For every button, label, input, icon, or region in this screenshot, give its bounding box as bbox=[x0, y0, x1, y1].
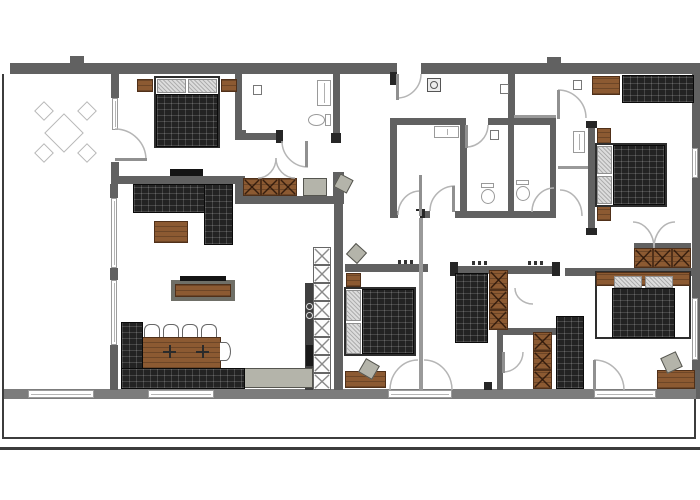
roomC-closet-x1 bbox=[533, 332, 552, 351]
bedroom4-desk bbox=[657, 370, 695, 389]
bedroomA-pillow-2 bbox=[346, 323, 361, 354]
hall-wall-post bbox=[331, 133, 341, 143]
corridor-bedroom4-door-arc bbox=[514, 287, 534, 305]
hall-west-wall bbox=[333, 73, 340, 135]
kitchen-back-counter bbox=[241, 368, 313, 388]
hall-east-door-arc bbox=[557, 89, 587, 119]
south-window-1 bbox=[28, 390, 94, 398]
bedroomB-exterior-door-arc bbox=[423, 359, 453, 391]
sanitary-north-wall-a bbox=[390, 118, 466, 125]
kitchen-tall-unit-3 bbox=[313, 283, 331, 301]
bedroom1-pillow-right bbox=[188, 79, 217, 93]
entry-pendant-lamp bbox=[500, 84, 509, 94]
west-window-1 bbox=[112, 98, 118, 130]
bath1-toilet-bowl bbox=[308, 114, 325, 126]
wall-tv-bar bbox=[170, 169, 203, 176]
bedroom1-nightstand-left bbox=[137, 79, 153, 92]
entry-door-arc bbox=[396, 73, 422, 99]
bedroom2-bench bbox=[592, 76, 620, 95]
shower-room-door-arc bbox=[559, 189, 583, 217]
bedroom1-duvet bbox=[156, 94, 218, 147]
hall-east-door-leaf bbox=[557, 90, 560, 119]
bedroom4-duvet bbox=[612, 288, 675, 338]
bedroomB-closet-x2 bbox=[489, 290, 508, 310]
bedroom1-pillow-left bbox=[157, 79, 186, 93]
bedroom2-closet-x1 bbox=[634, 248, 653, 268]
hall-closet-x1 bbox=[243, 178, 261, 196]
west-wall-seg-3 bbox=[110, 184, 118, 198]
wc1-door-arc bbox=[465, 124, 489, 148]
south-door-threshold-2 bbox=[594, 390, 656, 398]
bar-stool-2 bbox=[346, 243, 367, 264]
roomC-closet-x3 bbox=[533, 370, 552, 389]
corridor-door-arc bbox=[397, 190, 421, 216]
corridor-south-wall-a bbox=[345, 264, 428, 272]
sofa-short-section bbox=[204, 184, 233, 245]
ensuite-door-leaf bbox=[305, 141, 308, 167]
sanitary-west-wall bbox=[390, 125, 397, 218]
bath1-south-wall bbox=[242, 133, 278, 140]
bedroom4-pillow-1 bbox=[614, 276, 642, 288]
south-door-threshold-1 bbox=[388, 390, 452, 398]
south-window-2 bbox=[148, 390, 214, 398]
hall-shelf bbox=[303, 178, 327, 196]
east-window-2 bbox=[692, 298, 698, 360]
kitchen-tall-unit-8 bbox=[313, 373, 331, 390]
wc2-toilet-tank bbox=[516, 180, 529, 185]
tv-bar bbox=[180, 276, 226, 281]
bedroomB-closet-x3 bbox=[489, 310, 508, 330]
coat-hook-8 bbox=[404, 260, 407, 264]
terrace-chair-3 bbox=[34, 143, 54, 163]
coat-hook-3 bbox=[484, 261, 487, 265]
dining-bench-side bbox=[121, 322, 143, 370]
bedroom2-closet-x2 bbox=[653, 248, 672, 268]
bedroom4-headboard bbox=[596, 272, 690, 286]
wc1-toilet-bowl bbox=[481, 189, 495, 204]
dining-chair-1 bbox=[144, 324, 160, 337]
bathA-door-gap bbox=[430, 211, 455, 218]
coat-hook-4 bbox=[528, 261, 531, 265]
coat-hook-6 bbox=[540, 261, 543, 265]
bedroom2-pillow-1 bbox=[597, 146, 612, 174]
coat-hook-7 bbox=[398, 260, 401, 264]
terrace-chair-2 bbox=[77, 101, 97, 121]
roomC-door-arc bbox=[502, 351, 524, 373]
chimney-mark-1 bbox=[70, 56, 84, 64]
kitchen-sink-bowl-1 bbox=[306, 303, 313, 310]
wc2-door-arc bbox=[531, 187, 555, 213]
tv-board-wood-top bbox=[175, 284, 231, 297]
bedroom2-closet-x3 bbox=[672, 248, 691, 268]
coffee-table bbox=[154, 221, 188, 243]
dining-chair-4 bbox=[201, 324, 217, 337]
table-cross-2 bbox=[196, 345, 209, 358]
hall-closet-x2 bbox=[261, 178, 279, 196]
terrace-door-leaf bbox=[115, 158, 147, 161]
bedroom4-exterior-door-leaf bbox=[593, 360, 596, 390]
hall-closet-x3 bbox=[279, 178, 297, 196]
niche-wall bbox=[235, 196, 343, 204]
bedroom2-wardrobe bbox=[622, 75, 694, 103]
deck-edge-bottom bbox=[2, 437, 695, 439]
bathA-pendant-lamp bbox=[490, 130, 499, 140]
bottom-wall-post bbox=[484, 382, 492, 390]
bedroom2-nightstand-2 bbox=[597, 205, 611, 221]
dining-chair-3 bbox=[182, 324, 198, 337]
bedroom2-double-door-left bbox=[632, 221, 655, 249]
shower-room-divider bbox=[558, 166, 588, 169]
dining-chair-2 bbox=[163, 324, 179, 337]
bedroom2-west-wall bbox=[588, 125, 595, 230]
corridor-post-right bbox=[552, 262, 560, 276]
deck-edge-left bbox=[2, 74, 4, 438]
kitchen-sink-bowl-2 bbox=[306, 312, 313, 319]
floor-plan bbox=[0, 0, 700, 500]
bedroomA-duvet bbox=[362, 289, 414, 354]
kitchen-tall-unit-1 bbox=[313, 247, 331, 265]
kitchen-oven bbox=[306, 345, 313, 366]
east-window-1 bbox=[692, 148, 698, 178]
coat-hook-5 bbox=[534, 261, 537, 265]
wc1-toilet-tank bbox=[481, 183, 494, 188]
bedroom4-pillow-2 bbox=[645, 276, 673, 288]
coat-hook-1 bbox=[472, 261, 475, 265]
terrace-table bbox=[44, 113, 84, 153]
bedroomA-exterior-door-arc bbox=[389, 359, 419, 391]
terrace-chair-4 bbox=[77, 143, 97, 163]
west-wall-seg-5 bbox=[110, 345, 118, 390]
bedroom4-wardrobe bbox=[556, 316, 584, 389]
bedroom2-nightstand-1 bbox=[597, 128, 611, 144]
french-door-left-arc bbox=[257, 157, 277, 179]
kitchen-tall-unit-4 bbox=[313, 301, 331, 319]
bedroomB-closet-x1 bbox=[489, 270, 508, 290]
bottom-wall bbox=[2, 389, 696, 399]
kitchen-bedroom-wall bbox=[334, 204, 343, 390]
bedroom1-south-wall bbox=[112, 176, 245, 184]
site-boundary-line bbox=[0, 447, 700, 450]
sanitary-north-wall-b bbox=[488, 118, 556, 125]
bedroom2-wall-post-top bbox=[586, 121, 597, 128]
dining-table bbox=[142, 337, 221, 369]
corridor-door-leaf bbox=[419, 175, 422, 216]
bedroom2-wall-post-bottom bbox=[586, 228, 597, 235]
coat-hook-9 bbox=[410, 260, 413, 264]
bath1-toilet-tank bbox=[325, 114, 331, 126]
kitchen-tall-unit-6 bbox=[313, 337, 331, 355]
entry-east-wall bbox=[508, 73, 515, 118]
ceiling-spot-fixture bbox=[427, 78, 441, 92]
dining-bench-bottom bbox=[121, 368, 245, 389]
terrace-chair-1 bbox=[34, 101, 54, 121]
wc1-door-leaf bbox=[465, 125, 468, 148]
bath1-pendant-lamp bbox=[253, 85, 262, 95]
west-wall-seg-1 bbox=[111, 73, 119, 98]
bathA-door-leaf bbox=[452, 186, 455, 212]
table-cross-1 bbox=[163, 345, 176, 358]
bedroom2-double-door-right bbox=[653, 221, 676, 249]
entry-door-leaf bbox=[396, 74, 399, 100]
roomC-closet-x2 bbox=[533, 351, 552, 370]
french-door-right-arc bbox=[275, 157, 296, 179]
roomC-door-leaf bbox=[502, 352, 505, 373]
deck-edge-right bbox=[694, 399, 696, 439]
chimney-mark-2 bbox=[547, 57, 561, 64]
shower-room-sink bbox=[573, 131, 585, 153]
kitchen-tall-unit-7 bbox=[313, 355, 331, 373]
west-window-3 bbox=[111, 280, 117, 345]
coat-hook-2 bbox=[478, 261, 481, 265]
kitchen-tall-unit-5 bbox=[313, 319, 331, 337]
bathA-double-sink bbox=[434, 126, 459, 138]
dining-chair-end bbox=[220, 342, 231, 361]
bedroomB-wardrobe bbox=[455, 273, 488, 343]
wc2-toilet-bowl bbox=[516, 186, 530, 201]
bedroom4-exterior-door-arc bbox=[593, 359, 625, 391]
bedroom1-nightstand-right bbox=[221, 79, 237, 92]
wc-divider-wall bbox=[508, 125, 514, 211]
bath1-washbasin bbox=[317, 80, 331, 106]
west-wall-seg-4 bbox=[110, 268, 118, 280]
bedroom2-pillow-2 bbox=[597, 176, 612, 204]
kitchen-tall-unit-2 bbox=[313, 265, 331, 283]
entry-thin-partition bbox=[514, 115, 556, 118]
bedroomA-pillow-1 bbox=[346, 290, 361, 321]
west-window-2 bbox=[111, 198, 117, 268]
bedroom2-duvet bbox=[613, 145, 665, 205]
terrace-door-arc bbox=[114, 128, 147, 161]
bedroomA-nightstand bbox=[346, 273, 361, 287]
